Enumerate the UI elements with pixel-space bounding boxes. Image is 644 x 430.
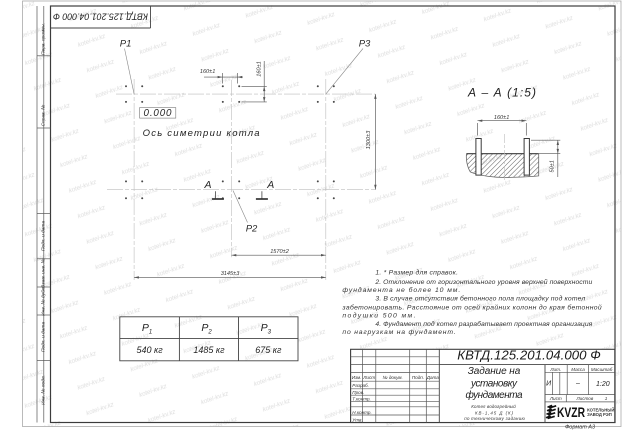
svg-text:Справ. №: Справ. № [41, 105, 47, 127]
svg-text:Инв. № подл.: Инв. № подл. [41, 375, 47, 405]
svg-text:50±1: 50±1 [550, 160, 556, 172]
svg-text:Масштаб: Масштаб [591, 367, 613, 372]
svg-text:№ докум.: № докум. [383, 375, 403, 380]
svg-text:Лист: Лист [362, 375, 375, 380]
svg-text:3. В случае отсутствия бетонно: 3. В случае отсутствия бетонного пола пл… [375, 295, 585, 303]
svg-text:Масса: Масса [571, 367, 585, 372]
svg-text:Изм.: Изм. [352, 375, 362, 380]
svg-text:А – А (1:5): А – А (1:5) [467, 85, 536, 99]
svg-text:Т.контр.: Т.контр. [352, 396, 371, 401]
svg-text:по нагрузкам на фундамент.: по нагрузкам на фундамент. [342, 328, 455, 336]
svg-text:Дата: Дата [426, 375, 440, 380]
svg-text:по техническому заданию: по техническому заданию [464, 416, 525, 421]
svg-text:0.000: 0.000 [144, 108, 173, 119]
svg-text:3145±3: 3145±3 [221, 271, 241, 277]
svg-text:540 кг: 540 кг [136, 345, 163, 355]
svg-text:Р2: Р2 [246, 223, 258, 234]
svg-text:КВТД.125.201.04.000 Ф: КВТД.125.201.04.000 Ф [53, 12, 148, 22]
svg-text:Пров.: Пров. [352, 390, 364, 395]
svg-text:Задание на: Задание на [468, 366, 521, 377]
svg-text:Подп.: Подп. [412, 375, 424, 380]
svg-text:КВ-1,45 Д (К): КВ-1,45 Д (К) [475, 411, 514, 416]
svg-text:Формат А3: Формат А3 [565, 424, 596, 430]
svg-text:160±1: 160±1 [257, 61, 263, 77]
svg-text:1: 1 [605, 396, 608, 401]
svg-text:Перв. примен.: Перв. примен. [41, 23, 47, 55]
svg-text:1570±2: 1570±2 [270, 249, 290, 255]
svg-text:фундамента не более 10 мм.: фундамента не более 10 мм. [342, 286, 460, 294]
svg-text:ЗАВОД РЭП: ЗАВОД РЭП [587, 412, 612, 417]
svg-text:Подп. и дата: Подп. и дата [41, 221, 47, 251]
svg-text:Н.контр.: Н.контр. [352, 410, 371, 415]
svg-text:2. Отклонение от горизонтально: 2. Отклонение от горизонтального уровня … [374, 278, 592, 286]
svg-text:Лист: Лист [549, 396, 562, 401]
svg-text:А: А [266, 179, 274, 191]
svg-text:Взам. инв. №: Взам. инв. № [41, 258, 47, 288]
svg-text:установку: установку [470, 378, 518, 389]
svg-text:Котел водогрейный: Котел водогрейный [471, 404, 516, 409]
svg-text:КВТД.125.201.04.000 Ф: КВТД.125.201.04.000 Ф [457, 348, 601, 363]
svg-text:Листов: Листов [576, 396, 594, 401]
svg-text:фундамента: фундамента [466, 389, 523, 401]
svg-text:Подп. и дата: Подп. и дата [41, 322, 47, 352]
svg-text:забетонировать. Расстояние от: забетонировать. Расстояние от осей крайн… [341, 303, 602, 311]
svg-text:675 кг: 675 кг [255, 345, 282, 355]
svg-text:1:20: 1:20 [596, 381, 610, 388]
svg-text:4. Фундамент под котел разраба: 4. Фундамент под котел разрабатывает про… [375, 320, 592, 328]
svg-text:160±1: 160±1 [494, 115, 510, 121]
svg-text:Р3: Р3 [359, 39, 371, 50]
svg-text:Лит.: Лит. [549, 367, 561, 372]
svg-text:Инв. № дубл.: Инв. № дубл. [41, 286, 47, 316]
svg-text:–: – [575, 381, 580, 388]
svg-text:А: А [203, 179, 211, 191]
svg-text:KVZR: KVZR [557, 405, 585, 420]
svg-text:1. * Размер для справок.: 1. * Размер для справок. [375, 269, 458, 277]
svg-text:1300±3: 1300±3 [366, 130, 372, 150]
svg-text:Р1: Р1 [120, 39, 132, 50]
svg-text:Разраб.: Разраб. [352, 383, 369, 388]
svg-text:Утв.: Утв. [352, 418, 362, 423]
svg-text:1485 кг: 1485 кг [193, 345, 225, 355]
svg-text:Ось симетрии котла: Ось симетрии котла [143, 128, 260, 139]
svg-text:160±1: 160±1 [200, 69, 216, 75]
svg-text:подушки 500 мм.: подушки 500 мм. [342, 311, 415, 319]
